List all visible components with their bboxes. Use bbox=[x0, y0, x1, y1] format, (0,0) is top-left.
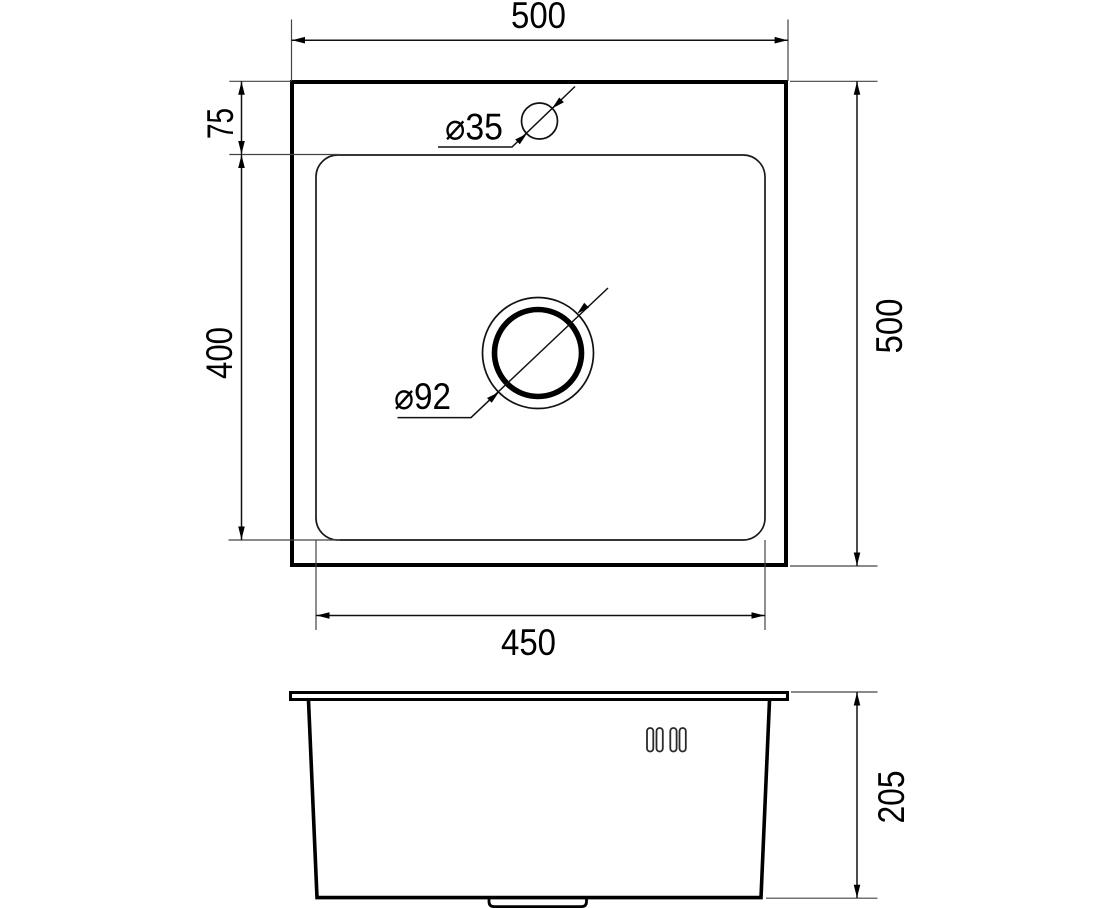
svg-text:400: 400 bbox=[199, 327, 240, 379]
svg-text:75: 75 bbox=[200, 108, 241, 139]
svg-text:450: 450 bbox=[501, 622, 556, 663]
svg-text:205: 205 bbox=[871, 771, 912, 824]
svg-text:500: 500 bbox=[511, 0, 566, 36]
svg-text:500: 500 bbox=[869, 299, 910, 354]
svg-text:⌀92: ⌀92 bbox=[394, 376, 451, 417]
svg-text:⌀35: ⌀35 bbox=[445, 107, 503, 148]
